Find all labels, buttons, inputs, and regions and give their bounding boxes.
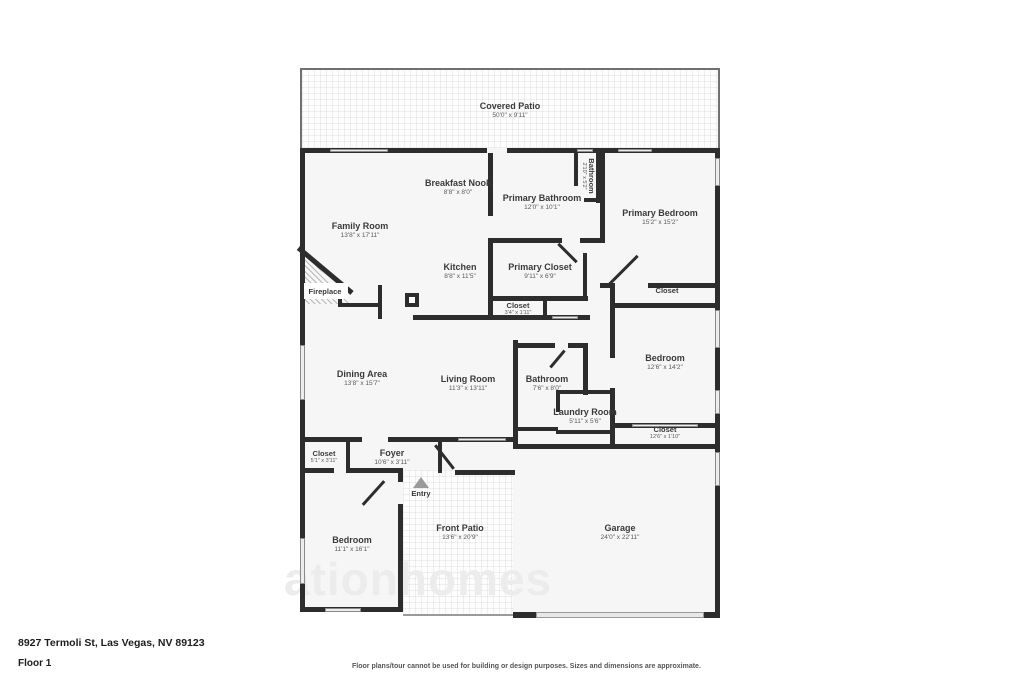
room-label-bathroom: Bathroom 7'6" x 8'0" <box>526 374 569 393</box>
garage-door <box>536 612 704 618</box>
wall <box>610 303 720 308</box>
wall <box>600 148 605 243</box>
window <box>458 438 506 441</box>
room-label-family-room: Family Room 13'8" x 17'11" <box>332 221 389 240</box>
room-label-foyer: Foyer 10'6" x 3'11" <box>374 448 409 467</box>
room-label-breakfast-nook: Breakfast Nook 8'8" x 8'0" <box>425 178 491 197</box>
opening <box>334 468 346 473</box>
window <box>325 608 361 612</box>
room-label-closet-hall: Closet 5'1" x 3'11" <box>311 449 338 465</box>
room-label-front-patio: Front Patio 13'6" x 20'9" <box>436 523 484 542</box>
window <box>330 149 388 152</box>
entry-arrow-icon <box>413 477 429 488</box>
wall <box>398 504 403 612</box>
wall <box>378 285 382 319</box>
wall <box>513 343 555 348</box>
window <box>552 316 578 319</box>
disclaimer-text: Floor plans/tour cannot be used for buil… <box>352 663 701 670</box>
window <box>300 345 305 400</box>
room-label-laundry-room: Laundry Room 5'11" x 5'6" <box>553 407 617 426</box>
watermark: ationhomes <box>284 552 552 606</box>
wall <box>398 468 403 482</box>
wall <box>556 430 612 434</box>
window <box>577 149 593 152</box>
wall <box>584 198 600 202</box>
room-label-dining-area: Dining Area 13'8" x 15'7" <box>337 369 387 388</box>
floor-plan-page: ationhomes <box>0 0 1024 683</box>
wall <box>513 444 720 449</box>
wall <box>488 238 562 243</box>
wall <box>596 148 600 203</box>
room-label-garage: Garage 24'0" x 22'11" <box>601 523 640 542</box>
window <box>618 149 652 152</box>
wall <box>715 148 720 618</box>
room-label-primary-closet: Primary Closet 9'11" x 6'9" <box>508 262 572 281</box>
room-label-closet-primary: Closet <box>656 286 679 295</box>
wall <box>338 303 382 307</box>
wall <box>583 343 588 395</box>
room-label-primary-bedroom: Primary Bedroom 15'2" x 15'2" <box>622 208 698 227</box>
wall <box>513 427 558 431</box>
opening <box>362 437 388 442</box>
wall <box>580 238 605 243</box>
window <box>715 452 720 486</box>
opening <box>487 148 507 153</box>
wall <box>300 468 402 473</box>
wall <box>574 148 578 186</box>
room-label-primary-bathroom: Primary Bathroom 12'0" x 10'1" <box>503 193 582 212</box>
room-label-kitchen: Kitchen 8'8" x 11'5" <box>443 262 476 281</box>
front-patio-edge <box>403 614 513 616</box>
room-label-wc-bathroom: Bathroom 2'10" x 5'2" <box>580 158 596 193</box>
room-label-covered-patio: Covered Patio 50'0" x 9'11" <box>480 101 541 120</box>
room-label-bedroom-left: Bedroom 11'1" x 16'1" <box>332 535 372 554</box>
wall <box>583 253 587 300</box>
property-address: 8927 Termoli St, Las Vegas, NV 89123 <box>18 637 205 649</box>
kitchen-post <box>405 293 419 307</box>
wall <box>488 238 493 300</box>
window <box>715 310 720 348</box>
room-label-closet-kitchen: Closet 3'4" x 1'11" <box>505 301 532 317</box>
room-label-living-room: Living Room 11'3" x 13'11" <box>441 374 496 393</box>
room-label-fireplace: Fireplace <box>309 287 342 296</box>
room-label-bedroom-right: Bedroom 12'6" x 14'2" <box>645 353 685 372</box>
room-label-closet-bedroom-right: Closet 12'6" x 1'10" <box>650 425 680 441</box>
window <box>300 538 305 584</box>
window <box>715 390 720 414</box>
window <box>715 158 720 186</box>
wall <box>346 437 350 471</box>
room-label-entry: Entry <box>411 489 430 498</box>
wall <box>488 296 588 301</box>
wall <box>610 283 615 358</box>
wall <box>455 470 515 475</box>
floor-label: Floor 1 <box>18 658 51 669</box>
